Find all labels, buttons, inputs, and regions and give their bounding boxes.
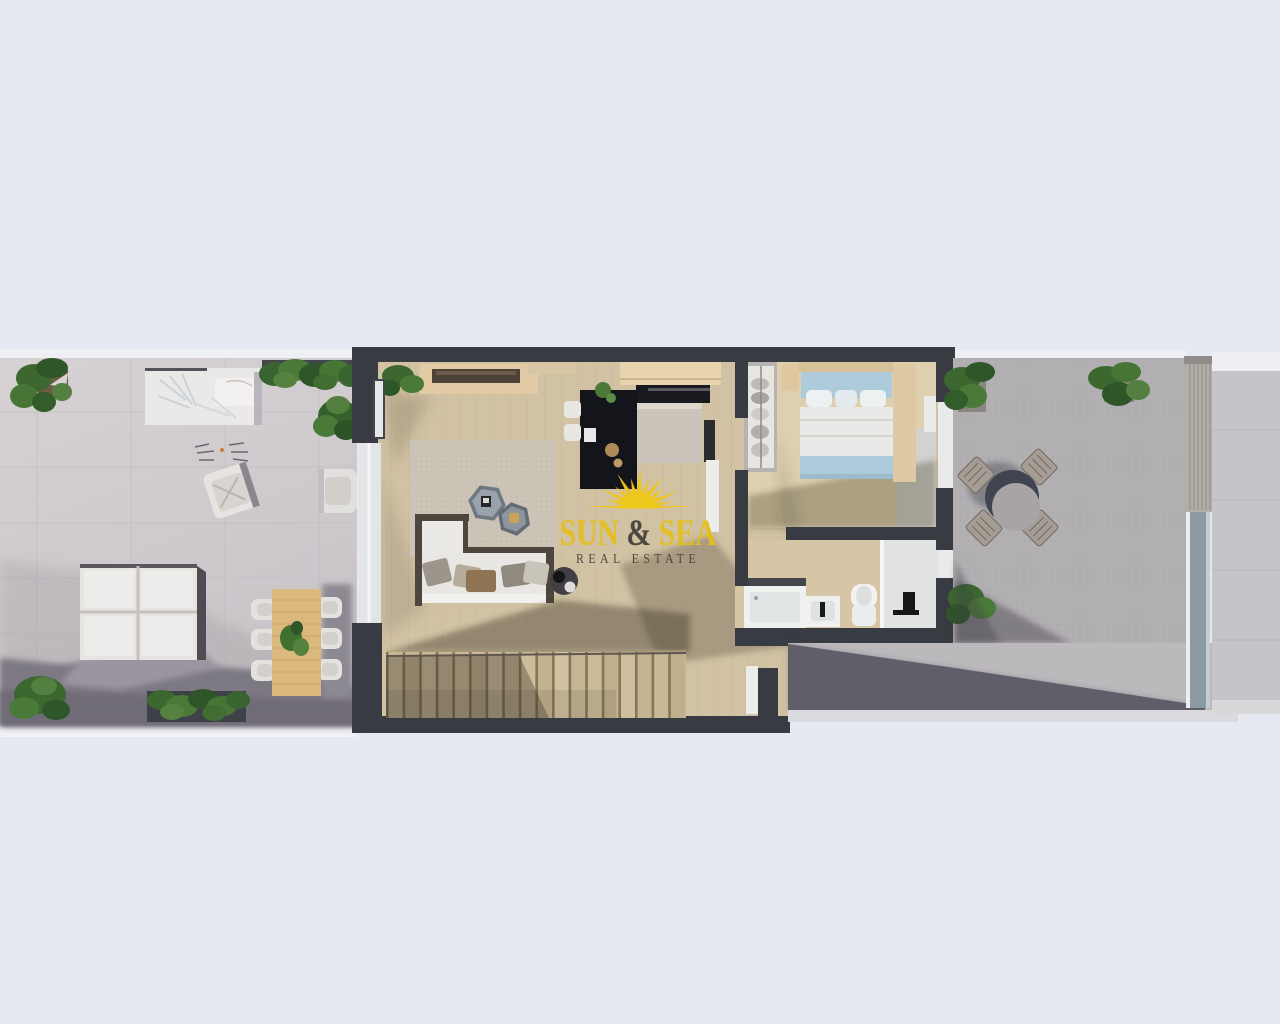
svg-text:REAL ESTATE: REAL ESTATE [576, 551, 700, 566]
svg-text:SUN & SEA: SUN & SEA [560, 513, 717, 554]
